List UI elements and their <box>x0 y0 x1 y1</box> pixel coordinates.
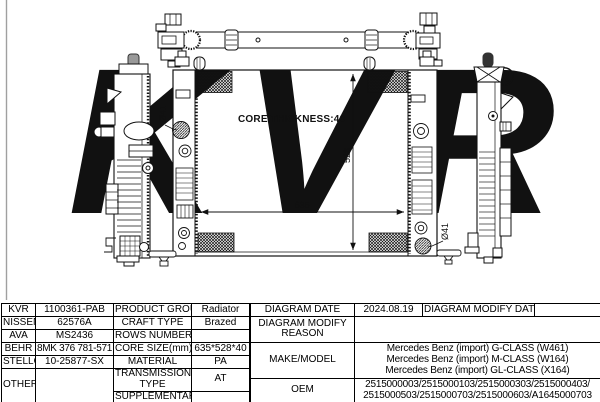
table-row: MAKE/MODEL Mercedes Benz (import) G-CLAS… <box>251 342 600 379</box>
modify-reason-value <box>355 317 600 342</box>
transmission-type-value: AT <box>192 369 250 392</box>
oem-value: 2515000003/2515000103/2515000303/2515000… <box>355 379 600 402</box>
brand-stellox: STELLOX <box>2 356 36 369</box>
code-nissens: 62576A <box>36 317 114 330</box>
table-row: KVR 1100361-PAB PRODUCT GROUP Radiator <box>2 304 250 317</box>
code-ava: MS2436 <box>36 330 114 343</box>
craft-type-label: CRAFT TYPE <box>114 317 192 330</box>
right-port-diameter-label: Ø41 <box>440 223 450 240</box>
craft-type-value: Brazed <box>192 317 250 330</box>
modify-reason-label: DIAGRAM MODIFY REASON <box>251 317 355 342</box>
height-dimension-label: 528 <box>342 148 352 163</box>
code-stellox: 10-25877-SX <box>36 356 114 369</box>
left-port-diameter-label: Ø41 <box>158 105 168 122</box>
spec-table-right: DIAGRAM DATE 2024.08.19 DIAGRAM MODIFY D… <box>250 303 600 402</box>
spec-table: KVR 1100361-PAB PRODUCT GROUP Radiator N… <box>1 303 600 402</box>
fin-block-bottom-left <box>198 233 234 252</box>
brand-kvr: KVR <box>2 304 36 317</box>
brand-ava: AVA <box>2 330 36 343</box>
table-row: AVA MS2436 ROWS NUMBER <box>2 330 250 343</box>
product-group-label: PRODUCT GROUP <box>114 304 192 317</box>
make-model-label: MAKE/MODEL <box>251 342 355 379</box>
radiator-catalog-page: KVR ® <box>0 0 600 402</box>
diagram-modify-date-value <box>535 304 600 317</box>
supplementary-value <box>192 391 250 402</box>
code-behr: 8MK 376 781-571 <box>36 343 114 356</box>
diagram-date-label: DIAGRAM DATE <box>251 304 355 317</box>
diagram-modify-date-label: DIAGRAM MODIFY DATE <box>423 304 535 317</box>
radiator-diagram: KVR ® <box>0 0 600 303</box>
fin-block-top-right <box>368 72 407 93</box>
width-dimension-label: 635 <box>294 200 309 210</box>
mounting-bracket-left <box>149 251 176 266</box>
diagram-date-value: 2024.08.19 <box>355 304 423 317</box>
brand-behr: BEHR <box>2 343 36 356</box>
table-row: STELLOX 10-25877-SX MATERIAL PA <box>2 356 250 369</box>
spec-table-left: KVR 1100361-PAB PRODUCT GROUP Radiator N… <box>1 303 250 402</box>
fin-block-top-left <box>198 72 232 93</box>
fin-block-bottom-right <box>369 233 407 252</box>
material-label: MATERIAL <box>114 356 192 369</box>
table-row: DIAGRAM MODIFY REASON <box>251 317 600 342</box>
supplementary-label: SUPPLEMENTARY <box>114 391 192 402</box>
core-size-value: 635*528*40 <box>192 343 250 356</box>
core-thickness-label: CORE THICKNESS:40 <box>238 114 346 125</box>
rows-number-value <box>192 330 250 343</box>
left-inlet-port <box>173 122 190 139</box>
table-row: DIAGRAM DATE 2024.08.19 DIAGRAM MODIFY D… <box>251 304 600 317</box>
technical-drawing: KVR ® <box>0 0 600 303</box>
transmission-type-label: TRANSMISSION TYPE <box>114 369 192 392</box>
model-line: Mercedes Benz (import) GL-CLASS (X164) <box>356 366 599 377</box>
code-others <box>36 369 114 402</box>
table-row: OTHERS TRANSMISSION TYPE AT <box>2 369 250 392</box>
oem-label: OEM <box>251 379 355 402</box>
make-model-value: Mercedes Benz (import) G-CLASS (W461) Me… <box>355 342 600 379</box>
table-row: OEM 2515000003/2515000103/2515000303/251… <box>251 379 600 402</box>
material-value: PA <box>192 356 250 369</box>
brand-others: OTHERS <box>2 369 36 402</box>
code-kvr: 1100361-PAB <box>36 304 114 317</box>
right-outlet-port <box>415 238 431 254</box>
oem-line: 2515000503/2515000703/2515000603/A164500… <box>356 391 599 402</box>
rows-number-label: ROWS NUMBER <box>114 330 192 343</box>
table-row: NISSENS 62576A CRAFT TYPE Brazed <box>2 317 250 330</box>
core-size-label: CORE SIZE(mm) <box>114 343 192 356</box>
product-group-value: Radiator <box>192 304 250 317</box>
brand-nissens: NISSENS <box>2 317 36 330</box>
table-row: BEHR 8MK 376 781-571 CORE SIZE(mm) 635*5… <box>2 343 250 356</box>
